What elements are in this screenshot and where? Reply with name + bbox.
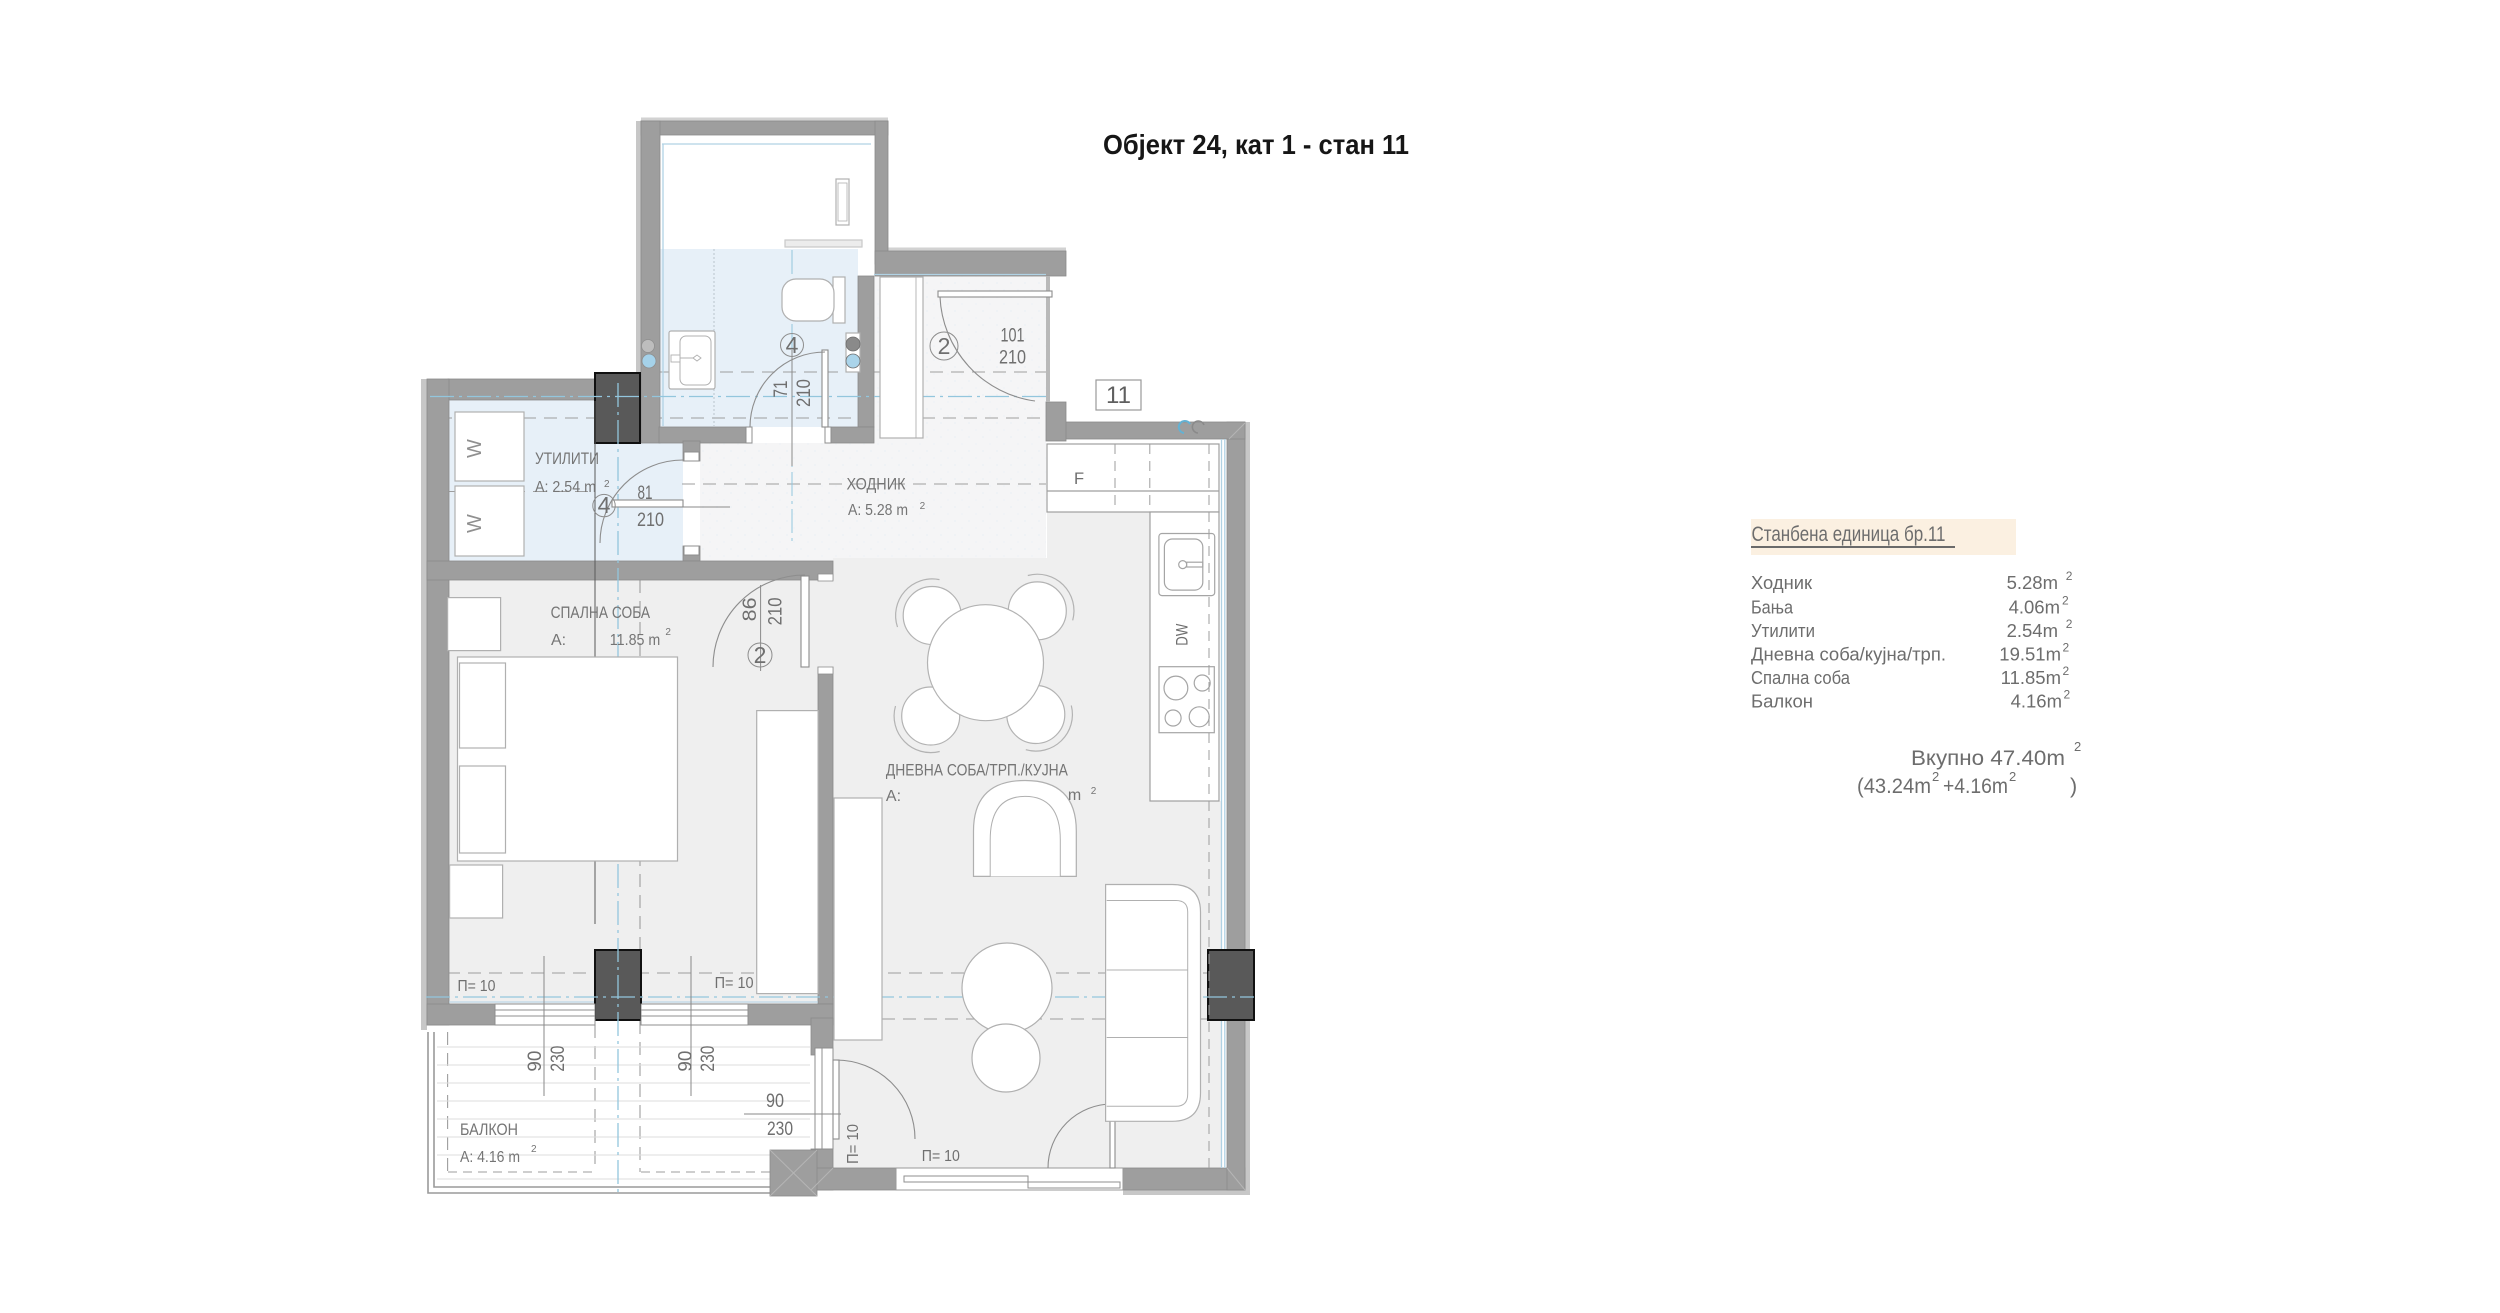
svg-text:2: 2	[2063, 664, 2070, 678]
svg-text:86: 86	[740, 597, 761, 621]
svg-text:210: 210	[794, 379, 815, 407]
svg-text:11: 11	[1106, 382, 1131, 409]
svg-text:71: 71	[771, 381, 792, 398]
svg-text:101: 101	[1001, 326, 1025, 347]
svg-text:4: 4	[598, 492, 611, 518]
svg-text:2: 2	[938, 333, 951, 359]
svg-text:81: 81	[638, 483, 653, 504]
svg-text:2: 2	[665, 627, 671, 638]
svg-text:11.85 m: 11.85 m	[610, 632, 661, 649]
svg-text:2.54m: 2.54m	[2007, 620, 2058, 641]
svg-text:210: 210	[766, 597, 787, 625]
svg-text:4.06m: 4.06m	[2009, 597, 2060, 618]
svg-text:2: 2	[2062, 594, 2069, 608]
svg-text:2: 2	[531, 1144, 537, 1155]
svg-text:+4.16m: +4.16m	[1943, 774, 2008, 798]
svg-text:19.51m: 19.51m	[1999, 644, 2061, 665]
svg-text:ДНЕВНА СОБА/ТРП./КУЈНА: ДНЕВНА СОБА/ТРП./КУЈНА	[886, 760, 1069, 779]
svg-text:2: 2	[920, 501, 926, 512]
svg-text:УТИЛИТИ: УТИЛИТИ	[535, 449, 599, 468]
svg-text:Вкупно 47.40m: Вкупно 47.40m	[1911, 746, 2065, 770]
svg-text:5.28m: 5.28m	[2007, 572, 2058, 593]
svg-text:230: 230	[698, 1046, 719, 1072]
svg-text:(43.24m: (43.24m	[1857, 774, 1931, 798]
svg-text:Бања: Бања	[1751, 597, 1794, 618]
svg-text:90: 90	[676, 1051, 697, 1072]
svg-text:П= 10: П= 10	[458, 978, 496, 995]
svg-text:m: m	[1068, 787, 1081, 804]
svg-text:Станбена единица бр.11: Станбена единица бр.11	[1752, 523, 1946, 546]
svg-text:230: 230	[548, 1046, 569, 1072]
svg-text:210: 210	[999, 348, 1026, 369]
svg-text:П= 10: П= 10	[922, 1148, 960, 1165]
svg-text:11.85m: 11.85m	[2001, 667, 2061, 688]
svg-text:СПАЛНА СОБА: СПАЛНА СОБА	[551, 603, 651, 622]
svg-text:230: 230	[767, 1119, 793, 1140]
svg-text:Утилити: Утилити	[1751, 620, 1815, 641]
svg-text:П= 10: П= 10	[715, 975, 754, 992]
svg-text:): )	[2070, 774, 2077, 798]
svg-text:4.16m: 4.16m	[2011, 691, 2062, 712]
svg-text:Ходник: Ходник	[1751, 572, 1813, 593]
svg-text:F: F	[1074, 470, 1084, 488]
svg-text:2: 2	[2009, 769, 2016, 784]
svg-text:90: 90	[766, 1091, 784, 1112]
svg-text:A: 2.54 m: A: 2.54 m	[535, 479, 596, 496]
svg-text:Балкон: Балкон	[1751, 691, 1813, 712]
svg-text:Дневна соба/кујна/трп.: Дневна соба/кујна/трп.	[1751, 644, 1946, 665]
svg-text:БАЛКОН: БАЛКОН	[460, 1120, 518, 1139]
svg-text:DW: DW	[1172, 624, 1191, 646]
svg-text:2: 2	[2074, 739, 2081, 754]
svg-text:A: 5.28 m: A: 5.28 m	[848, 502, 908, 519]
svg-text:2: 2	[2064, 688, 2071, 702]
svg-text:2: 2	[1932, 769, 1939, 784]
svg-text:Спална соба: Спална соба	[1751, 667, 1851, 688]
svg-text:4: 4	[786, 332, 799, 358]
svg-text:2: 2	[604, 479, 610, 490]
svg-text:A:: A:	[551, 632, 566, 649]
svg-text:ХОДНИК: ХОДНИК	[847, 475, 906, 494]
svg-text:A:: A:	[886, 788, 901, 805]
svg-text:П= 10: П= 10	[845, 1124, 862, 1164]
svg-text:2: 2	[2066, 617, 2073, 631]
svg-text:2: 2	[2063, 641, 2070, 655]
svg-text:W: W	[464, 439, 486, 458]
svg-text:90: 90	[525, 1051, 546, 1072]
svg-text:2: 2	[754, 642, 767, 668]
svg-text:Објект 24, кат 1 - стан 11: Објект 24, кат 1 - стан 11	[1103, 129, 1409, 160]
svg-text:A: 4.16 m: A: 4.16 m	[460, 1149, 520, 1166]
svg-text:2: 2	[1091, 786, 1097, 797]
svg-text:2: 2	[2066, 569, 2073, 583]
svg-text:W: W	[464, 514, 486, 533]
svg-text:210: 210	[637, 510, 664, 531]
